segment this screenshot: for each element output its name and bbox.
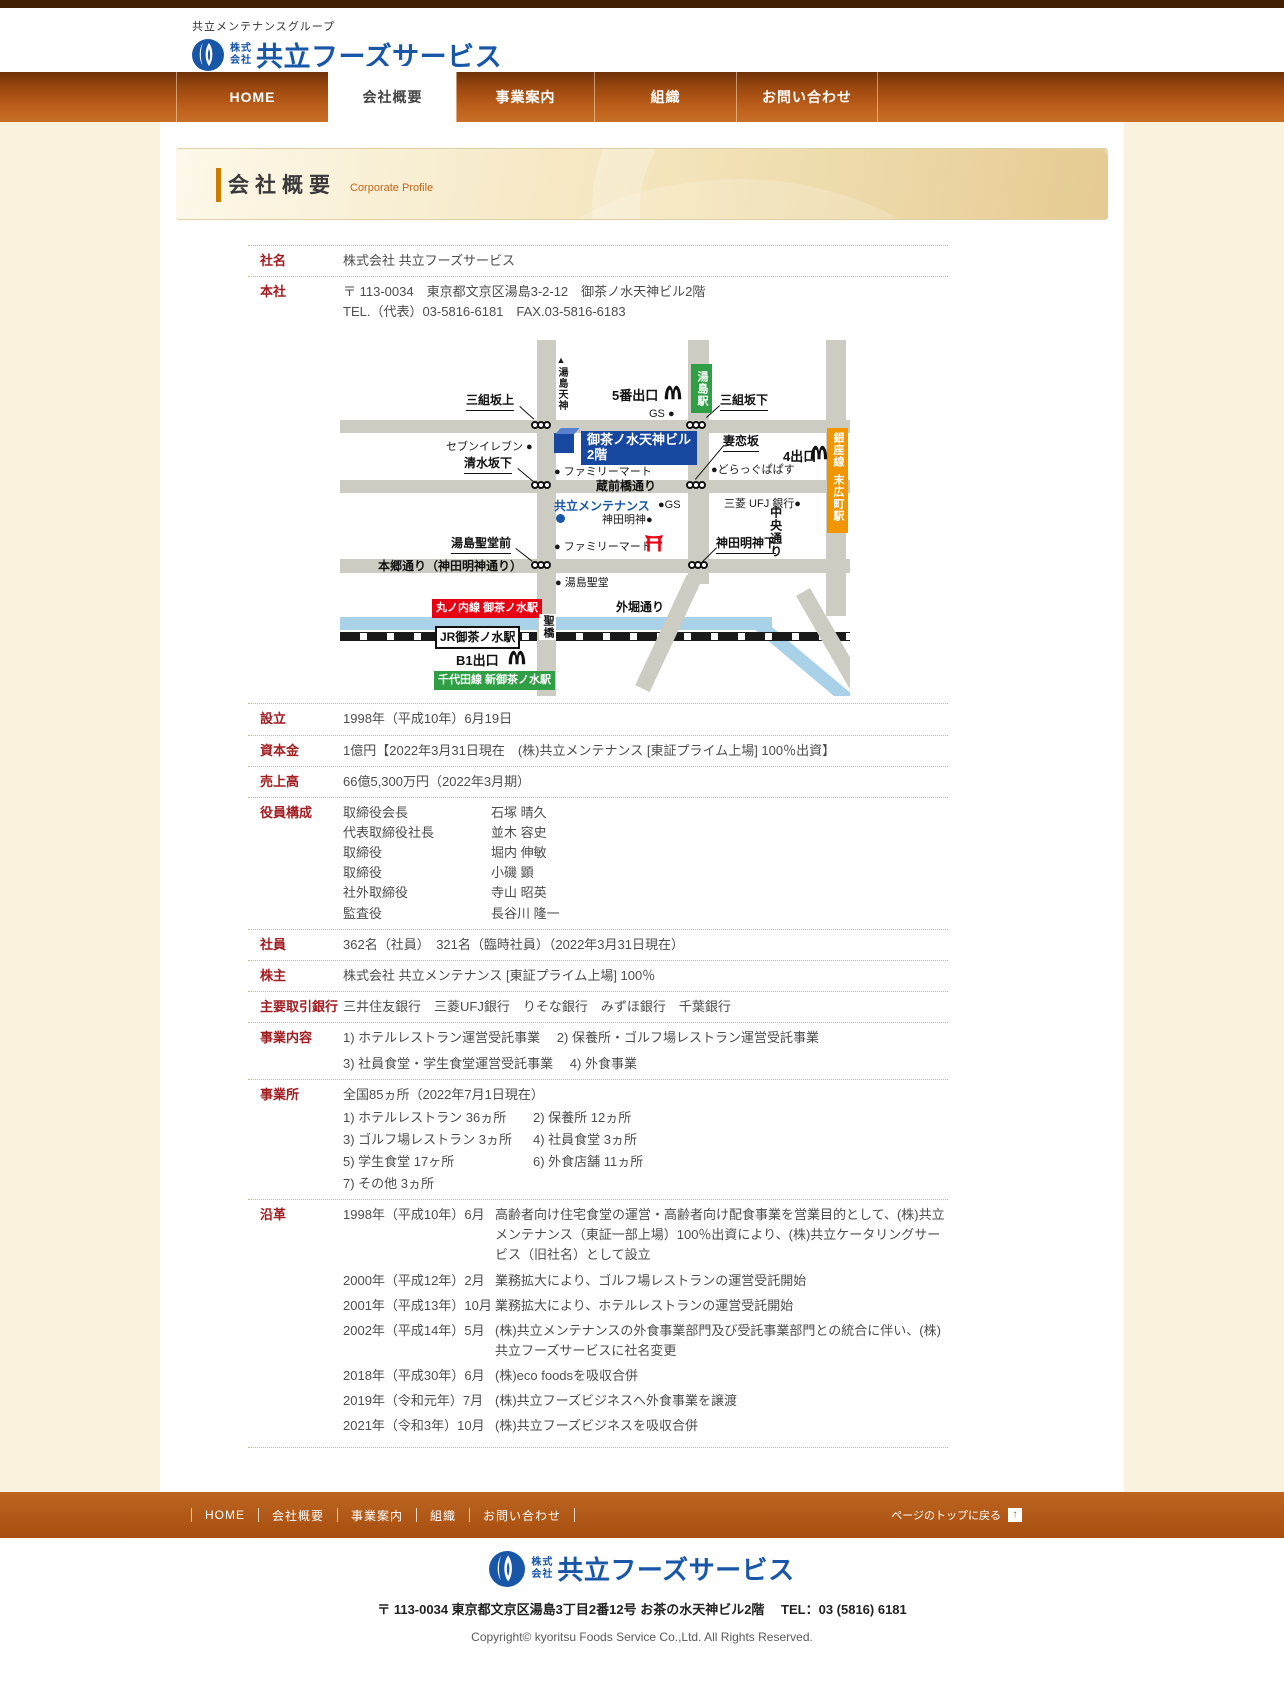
metro-logo-icon xyxy=(810,445,828,466)
row-label: 主要取引銀行 xyxy=(248,997,343,1017)
row-value: 1998年（平成10年）6月高齢者向け住宅食堂の運営・高齢者向け配食事業を営業目… xyxy=(343,1205,948,1441)
map-label-misakizaka-shita: 三組坂下 xyxy=(720,391,768,411)
back-to-top-label: ページのトップに戻る xyxy=(891,1507,1001,1523)
row-business-description: 事業内容 1) ホテルレストラン運営受託事業 2) 保養所・ゴルフ場レストラン運… xyxy=(248,1023,948,1080)
map-label-yushima-seido-mae: 湯島聖堂前 xyxy=(451,534,511,554)
offices-row: 1) ホテルレストラン 36ヵ所2) 保養所 12ヵ所 xyxy=(343,1108,948,1128)
main-nav: HOME 会社概要 事業案内 組織 お問い合わせ xyxy=(0,72,1284,122)
row-value: 三井住友銀行 三菱UFJ銀行 りそな銀行 みずほ銀行 千葉銀行 xyxy=(343,997,948,1017)
footer-link-business[interactable]: 事業案内 xyxy=(351,1507,403,1524)
road-seibashi-street xyxy=(537,340,556,696)
footer-separator xyxy=(258,1508,259,1522)
officer-row: 社外取締役寺山 昭英 xyxy=(343,883,948,903)
row-value: 株式会社 共立フーズサービス xyxy=(343,251,948,271)
railway-line xyxy=(340,632,850,641)
officer-row: 監査役長谷川 隆一 xyxy=(343,904,948,924)
nav-tab-business[interactable]: 事業案内 xyxy=(456,72,594,122)
footer-logo[interactable]: 株式会社 共立フーズサービス xyxy=(0,1550,1284,1587)
title-accent-bar xyxy=(216,168,221,202)
row-head-office: 本社 〒 113-0034 東京都文京区湯島3-2-12 御茶ノ水天神ビル2階 … xyxy=(248,277,948,704)
content-column: 会社概要 Corporate Profile 社名 株式会社 共立フーズサービス… xyxy=(160,122,1124,1492)
map-label-gs-mid: ●GS xyxy=(658,497,681,514)
footer-link-company-profile[interactable]: 会社概要 xyxy=(272,1507,324,1524)
row-label: 事業所 xyxy=(248,1085,343,1194)
footer-address: 〒 113-0034 東京都文京区湯島3丁目2番12号 お茶の水天神ビル2階 T… xyxy=(0,1599,1284,1618)
map-station-suehirocho: 銀座線末広町駅 xyxy=(827,428,848,532)
history-event: 2021年（令和3年）10月(株)共立フーズビジネスを吸収合併 xyxy=(343,1416,948,1436)
map-label-yushima-seido: ● 湯島聖堂 xyxy=(555,575,609,592)
row-value: 1998年（平成10年）6月19日 xyxy=(343,709,948,729)
row-value: 66億5,300万円（2022年3月期） xyxy=(343,772,948,792)
map-label-chuo-dori: 中央通り xyxy=(766,506,785,558)
footer-link-organization[interactable]: 組織 xyxy=(430,1507,456,1524)
connector-line xyxy=(519,406,534,419)
page-title: 会社概要 xyxy=(228,169,336,199)
map-label-gs-top: GS ● xyxy=(649,406,675,423)
history-event: 2001年（平成13年）10月業務拡大により、ホテルレストランの運営受託開始 xyxy=(343,1296,948,1316)
map-label-building: 御茶ノ水天神ビル2階 xyxy=(581,431,697,465)
row-label: 株主 xyxy=(248,966,343,986)
access-map: ▲湯島天神 5番出口 湯島駅 GS ● 三組坂上 三組坂下 御茶ノ水天神ビル2階… xyxy=(340,340,850,696)
officer-row: 取締役小磯 顕 xyxy=(343,863,948,883)
row-label: 役員構成 xyxy=(248,803,343,924)
offices-row: 5) 学生食堂 17ヶ所6) 外食店舗 11ヵ所 xyxy=(343,1152,948,1172)
triangle-icon: ▲ xyxy=(557,356,566,365)
footer-links: HOME 会社概要 事業案内 組織 お問い合わせ xyxy=(178,1492,588,1538)
map-label-b1-exit: B1出口 xyxy=(456,651,499,671)
row-employees: 社員 362名（社員） 321名（臨時社員）（2022年3月31日現在） xyxy=(248,930,948,961)
nav-tab-home[interactable]: HOME xyxy=(176,72,328,122)
footer-nav-bar: HOME 会社概要 事業案内 組織 お問い合わせ ページのトップに戻る ↑ xyxy=(0,1492,1284,1538)
back-to-top-button[interactable]: ページのトップに戻る ↑ xyxy=(891,1492,1022,1538)
crossing-misakizaka-shita xyxy=(686,421,704,429)
crossing-misakizaka-ue xyxy=(531,421,549,429)
map-label-tsumakoizaka: 妻恋坂 xyxy=(723,432,759,452)
map-label-sotobori-dori: 外堀通り xyxy=(616,598,664,617)
offices-row: 3) ゴルフ場レストラン 3ヵ所4) 社員食堂 3ヵ所 xyxy=(343,1130,948,1150)
metro-logo-icon xyxy=(664,385,682,406)
row-banks: 主要取引銀行 三井住友銀行 三菱UFJ銀行 りそな銀行 みずほ銀行 千葉銀行 xyxy=(248,992,948,1023)
road-kuramaebashi xyxy=(340,480,850,493)
page-title-en: Corporate Profile xyxy=(350,182,433,194)
map-label-exit5: 5番出口 xyxy=(612,386,658,406)
footer-separator xyxy=(416,1508,417,1522)
kyoritsu-location-dot xyxy=(556,514,565,523)
history-event: 1998年（平成10年）6月高齢者向け住宅食堂の運営・高齢者向け配食事業を営業目… xyxy=(343,1205,948,1265)
officer-row: 取締役堀内 伸敏 xyxy=(343,843,948,863)
business-line: 3) 社員食堂・学生食堂運営受託事業 4) 外食事業 xyxy=(343,1054,948,1074)
company-logo-icon xyxy=(489,1551,525,1587)
row-value: 1億円【2022年3月31日現在 (株)共立メンテナンス [東証プライム上場] … xyxy=(343,741,948,761)
map-label-kuramaebashi-dori: 蔵前橋通り xyxy=(596,480,656,493)
history-event: 2002年（平成14年）5月(株)共立メンテナンスの外食事業部門及び受託事業部門… xyxy=(343,1321,948,1361)
row-established: 設立 1998年（平成10年）6月19日 xyxy=(248,704,948,735)
map-station-jr-ochanomizu: JR御茶ノ水駅 xyxy=(435,626,520,649)
history-event: 2018年（平成30年）6月(株)eco foodsを吸収合併 xyxy=(343,1366,948,1386)
footer-separator xyxy=(337,1508,338,1522)
metro-logo-icon xyxy=(508,650,526,671)
torii-gate-icon xyxy=(644,533,664,558)
row-value: 〒 113-0034 東京都文京区湯島3-2-12 御茶ノ水天神ビル2階 TEL… xyxy=(343,282,948,698)
row-label: 沿革 xyxy=(248,1205,343,1441)
row-value: 全国85ヵ所（2022年7月1日現在） 1) ホテルレストラン 36ヵ所2) 保… xyxy=(343,1085,948,1194)
map-station-marunouchi-ochanomizu: 丸ノ内線 御茶ノ水駅 xyxy=(432,599,542,618)
nav-tab-contact[interactable]: お問い合わせ xyxy=(736,72,878,122)
map-label-drug-papasu: ●どらっぐぱぱす xyxy=(711,462,795,479)
brand-kabushiki-kaisha: 株式会社 xyxy=(531,1557,553,1580)
page-title-banner: 会社概要 Corporate Profile xyxy=(176,148,1108,220)
offices-row: 7) その他 3ヵ所 xyxy=(343,1174,948,1194)
map-label-mitsubishi-ufj: 三菱 UFJ 銀行● xyxy=(724,496,801,513)
building-cube-icon xyxy=(554,433,574,453)
row-value: 1) ホテルレストラン運営受託事業 2) 保養所・ゴルフ場レストラン運営受託事業… xyxy=(343,1028,948,1074)
footer-separator xyxy=(191,1508,192,1522)
footer-separator xyxy=(574,1508,575,1522)
brand-group-text: 共立メンテナンスグループ xyxy=(192,18,502,34)
officer-row: 取締役会長石塚 晴久 xyxy=(343,803,948,823)
site-footer: 株式会社 共立フーズサービス 〒 113-0034 東京都文京区湯島3丁目2番1… xyxy=(0,1538,1284,1684)
row-capital: 資本金 1億円【2022年3月31日現在 (株)共立メンテナンス [東証プライム… xyxy=(248,736,948,767)
company-profile-table: 社名 株式会社 共立フーズサービス 本社 〒 113-0034 東京都文京区湯島… xyxy=(248,245,948,1448)
site-header: 共立メンテナンスグループ 株式会社 共立フーズサービス xyxy=(0,8,1284,72)
row-label: 設立 xyxy=(248,709,343,729)
head-office-tel: TEL.（代表）03-5816-6181 FAX.03-5816-6183 xyxy=(343,302,948,322)
row-label: 事業内容 xyxy=(248,1028,343,1074)
offices-heading: 全国85ヵ所（2022年7月1日現在） xyxy=(343,1085,948,1105)
row-offices: 事業所 全国85ヵ所（2022年7月1日現在） 1) ホテルレストラン 36ヵ所… xyxy=(248,1080,948,1200)
row-label: 資本金 xyxy=(248,741,343,761)
footer-copyright: Copyright© kyoritsu Foods Service Co.,Lt… xyxy=(0,1630,1284,1644)
row-label: 売上高 xyxy=(248,772,343,792)
crossing-kanda-myojin-shita xyxy=(688,561,706,569)
history-event: 2000年（平成12年）2月業務拡大により、ゴルフ場レストランの運営受託開始 xyxy=(343,1271,948,1291)
business-line: 1) ホテルレストラン運営受託事業 2) 保養所・ゴルフ場レストラン運営受託事業 xyxy=(343,1028,948,1048)
back-to-top-icon: ↑ xyxy=(1008,1508,1022,1522)
map-label-seibashi: 聖橋 xyxy=(539,614,556,640)
row-officers: 役員構成 取締役会長石塚 晴久 代表取締役社長並木 容史 取締役堀内 伸敏 取締… xyxy=(248,798,948,930)
nav-tab-company-profile[interactable]: 会社概要 xyxy=(328,66,456,122)
row-company-name: 社名 株式会社 共立フーズサービス xyxy=(248,246,948,277)
row-label: 本社 xyxy=(248,282,343,698)
crossing-tsumakoizaka xyxy=(686,481,704,489)
nav-tab-organization[interactable]: 組織 xyxy=(594,72,736,122)
brand-kabushiki-kaisha: 株式会社 xyxy=(230,43,252,66)
footer-separator xyxy=(469,1508,470,1522)
company-logo-icon xyxy=(192,39,224,71)
crossing-shimizuzaka xyxy=(531,481,549,489)
head-office-address: 〒 113-0034 東京都文京区湯島3-2-12 御茶ノ水天神ビル2階 xyxy=(343,282,948,302)
officer-row: 代表取締役社長並木 容史 xyxy=(343,823,948,843)
top-accent-bar xyxy=(0,0,1284,8)
history-event: 2019年（令和元年）7月(株)共立フーズビジネスへ外食事業を譲渡 xyxy=(343,1391,948,1411)
map-label-familymart-mid: ● ファミリーマート xyxy=(554,539,652,556)
row-value: 362名（社員） 321名（臨時社員）（2022年3月31日現在） xyxy=(343,935,948,955)
footer-link-home[interactable]: HOME xyxy=(205,1508,245,1522)
map-station-chiyoda-shin-ochanomizu: 千代田線 新御茶ノ水駅 xyxy=(434,671,555,690)
footer-link-contact[interactable]: お問い合わせ xyxy=(483,1507,561,1524)
map-label-misakizaka-ue: 三組坂上 xyxy=(466,391,514,411)
brand-name: 共立フーズサービス xyxy=(557,1550,794,1587)
map-station-yushima: 湯島駅 xyxy=(691,364,712,413)
map-label-yushima-tenjin: ▲湯島天神 xyxy=(556,356,566,411)
row-history: 沿革 1998年（平成10年）6月高齢者向け住宅食堂の運営・高齢者向け配食事業を… xyxy=(248,1200,948,1447)
row-sales: 売上高 66億5,300万円（2022年3月期） xyxy=(248,767,948,798)
row-value: 株式会社 共立メンテナンス [東証プライム上場] 100％ xyxy=(343,966,948,986)
row-label: 社員 xyxy=(248,935,343,955)
row-value: 取締役会長石塚 晴久 代表取締役社長並木 容史 取締役堀内 伸敏 取締役小磯 顕… xyxy=(343,803,948,924)
row-label: 社名 xyxy=(248,251,343,271)
map-label-hongo-dori: 本郷通り（神田明神通り） xyxy=(378,560,522,573)
map-label-kanda-myojin: 神田明神● xyxy=(602,512,653,529)
main-area: 会社概要 Corporate Profile 社名 株式会社 共立フーズサービス… xyxy=(0,122,1284,1492)
row-shareholder: 株主 株式会社 共立メンテナンス [東証プライム上場] 100％ xyxy=(248,961,948,992)
map-label-shimizuzaka: 清水坂下 xyxy=(464,454,512,474)
crossing-yushima-seido-mae xyxy=(531,561,549,569)
